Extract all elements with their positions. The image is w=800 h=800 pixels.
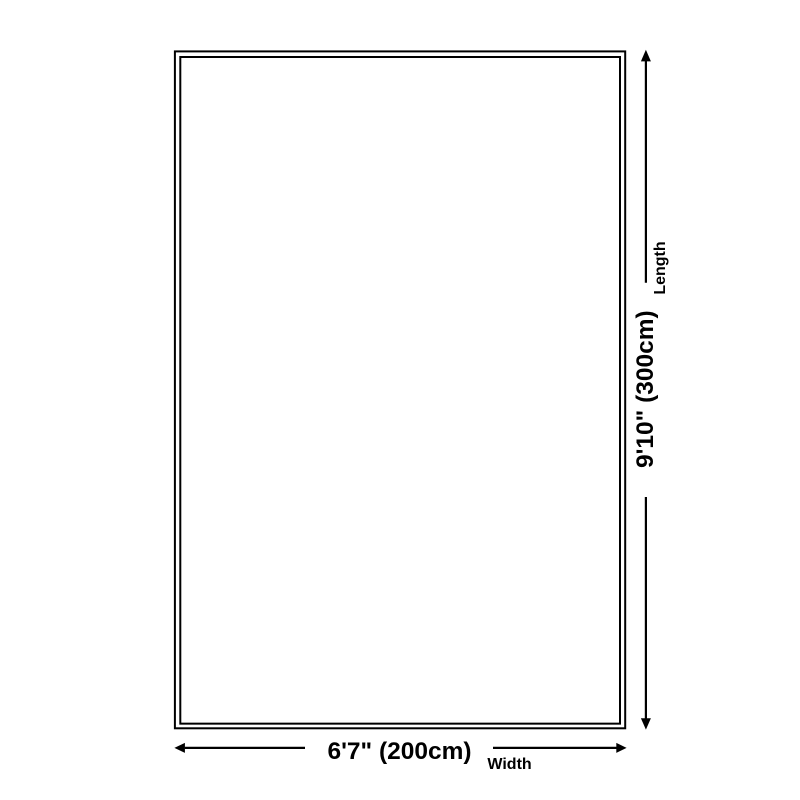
svg-text:Width: Width: [487, 756, 531, 773]
svg-text:Length: Length: [652, 241, 669, 294]
svg-text:9'10" (300cm): 9'10" (300cm): [632, 310, 659, 468]
svg-text:6'7" (200cm): 6'7" (200cm): [327, 738, 471, 765]
